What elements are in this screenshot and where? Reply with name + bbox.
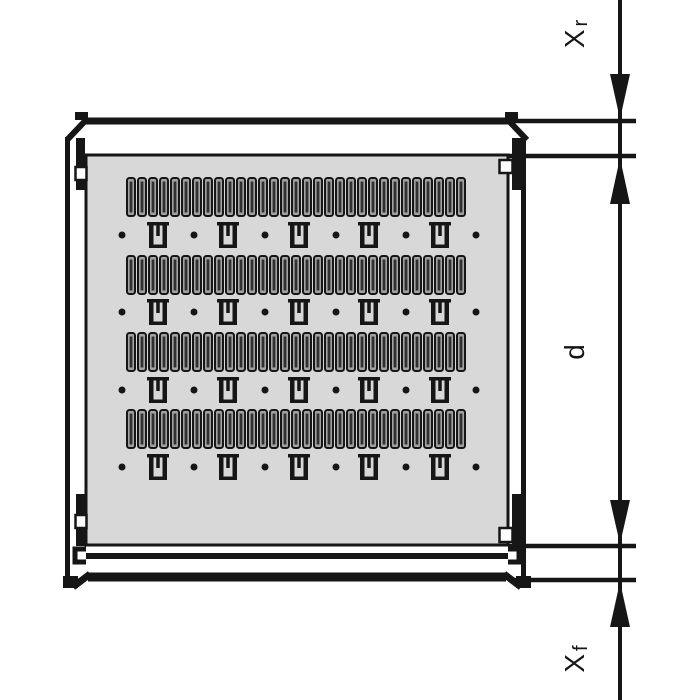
vent-slot <box>424 333 432 371</box>
vent-slot <box>369 410 377 448</box>
vent-slot <box>424 256 432 294</box>
vent-slot <box>226 333 234 371</box>
vent-slot <box>446 410 454 448</box>
bracket-bar-top-left <box>76 138 85 190</box>
vent-slot <box>248 333 256 371</box>
vent-slot <box>435 256 443 294</box>
corner-hole-bottom-left <box>76 515 87 528</box>
vent-slot <box>259 256 267 294</box>
vent-slot <box>237 178 245 216</box>
dimension-label-depth: d <box>559 344 590 360</box>
pilot-hole-dot <box>191 309 198 316</box>
vent-slot <box>325 410 333 448</box>
dimension-label-front-clearance: Xf <box>559 645 592 673</box>
vent-slot <box>204 333 212 371</box>
pilot-hole-dot <box>119 232 126 239</box>
vent-slot <box>435 178 443 216</box>
arrow-down-depth-bottom <box>610 500 630 544</box>
vent-slot <box>127 178 135 216</box>
corner-hole-top-right <box>500 160 513 173</box>
vent-slot <box>248 178 256 216</box>
vent-slot <box>281 333 289 371</box>
vent-slot <box>314 410 322 448</box>
vent-slot <box>193 178 201 216</box>
vent-slot <box>347 333 355 371</box>
vent-slot <box>413 178 421 216</box>
vent-slot <box>281 256 289 294</box>
vent-slot <box>303 410 311 448</box>
vent-slot <box>457 333 465 371</box>
vent-slot <box>127 410 135 448</box>
pilot-hole-dot <box>473 464 480 471</box>
vent-slot <box>314 256 322 294</box>
vent-slot <box>325 178 333 216</box>
drawing-canvas: XrdXf <box>0 0 700 700</box>
vent-slot <box>336 178 344 216</box>
vent-slot <box>149 333 157 371</box>
vent-slot <box>446 333 454 371</box>
bracket-hook-bottom-right <box>508 549 519 562</box>
vent-slot <box>413 410 421 448</box>
pilot-hole-dot <box>473 387 480 394</box>
pilot-hole-dot <box>473 309 480 316</box>
vent-slot <box>303 178 311 216</box>
vent-slot <box>127 333 135 371</box>
vent-slot <box>149 178 157 216</box>
vent-slot <box>435 410 443 448</box>
pilot-hole-dot <box>191 232 198 239</box>
vent-slot <box>292 410 300 448</box>
bottom-profile <box>63 556 531 588</box>
vent-slot <box>171 178 179 216</box>
arrow-down-rear <box>610 74 630 119</box>
corner-hole-top-left <box>76 167 87 180</box>
vent-slot <box>347 178 355 216</box>
vent-slot <box>457 410 465 448</box>
vent-slot <box>424 410 432 448</box>
vent-slot <box>369 333 377 371</box>
vent-slot <box>314 333 322 371</box>
vent-slot <box>281 410 289 448</box>
vent-slot <box>259 178 267 216</box>
vent-slot <box>270 178 278 216</box>
vent-slot <box>138 178 146 216</box>
pilot-hole-dot <box>333 464 340 471</box>
vent-slot <box>204 178 212 216</box>
vent-slot <box>171 333 179 371</box>
vent-slot <box>270 410 278 448</box>
vent-slot <box>182 333 190 371</box>
vent-slot <box>138 410 146 448</box>
vent-slot <box>347 256 355 294</box>
vent-slot <box>182 256 190 294</box>
vent-slot <box>160 333 168 371</box>
vent-slot <box>369 256 377 294</box>
vent-slot <box>171 256 179 294</box>
pilot-hole-dot <box>262 309 269 316</box>
top-profile <box>67 112 527 140</box>
vent-slot <box>259 333 267 371</box>
vent-slot <box>380 333 388 371</box>
vent-slot <box>281 178 289 216</box>
pilot-hole-dot <box>333 387 340 394</box>
pilot-hole-dot <box>403 464 410 471</box>
arrow-up-depth-top <box>610 158 630 204</box>
vent-slot <box>226 178 234 216</box>
vent-slot <box>215 410 223 448</box>
vent-slot <box>160 178 168 216</box>
vent-slot <box>303 256 311 294</box>
vent-slot <box>270 256 278 294</box>
vent-slot <box>204 256 212 294</box>
vent-slot <box>171 410 179 448</box>
vent-slot <box>160 410 168 448</box>
pilot-hole-dot <box>262 232 269 239</box>
vent-slot <box>413 256 421 294</box>
vent-slot <box>215 333 223 371</box>
pilot-hole-dot <box>119 464 126 471</box>
vent-slot <box>215 256 223 294</box>
vent-slot <box>402 333 410 371</box>
bottom-profile-left-foot <box>63 576 78 588</box>
pilot-hole-dot <box>191 464 198 471</box>
vent-slot <box>424 178 432 216</box>
vent-slot <box>457 256 465 294</box>
arrow-up-front <box>610 582 630 627</box>
vent-slot <box>325 333 333 371</box>
vent-slot <box>413 333 421 371</box>
vent-slot <box>380 178 388 216</box>
vent-slot <box>138 333 146 371</box>
vent-slot <box>226 256 234 294</box>
vent-slot <box>380 256 388 294</box>
vent-slot <box>446 256 454 294</box>
pilot-hole-dot <box>191 387 198 394</box>
pilot-hole-dot <box>119 387 126 394</box>
pilot-hole-dot <box>403 309 410 316</box>
vent-slot <box>369 178 377 216</box>
pilot-hole-dot <box>333 232 340 239</box>
vent-slot <box>380 410 388 448</box>
vent-slot <box>237 410 245 448</box>
vent-slot <box>193 333 201 371</box>
vent-slot <box>292 333 300 371</box>
pilot-hole-dot <box>262 464 269 471</box>
vent-slot <box>292 178 300 216</box>
vent-slot <box>446 178 454 216</box>
vent-slot <box>435 333 443 371</box>
vent-slot <box>204 410 212 448</box>
vent-slot <box>391 410 399 448</box>
pilot-hole-dot <box>473 232 480 239</box>
vent-slot <box>325 256 333 294</box>
vent-slot <box>270 333 278 371</box>
vent-slot <box>457 178 465 216</box>
vent-slot <box>358 178 366 216</box>
vent-slot <box>193 410 201 448</box>
vent-slot <box>336 333 344 371</box>
vent-slot <box>259 410 267 448</box>
vent-slot <box>402 410 410 448</box>
dimension-label-rear-clearance: Xr <box>559 19 592 48</box>
vent-slot <box>314 178 322 216</box>
vent-slot <box>402 178 410 216</box>
vent-slot <box>347 410 355 448</box>
vent-slot <box>182 178 190 216</box>
vent-slot <box>248 256 256 294</box>
vent-slot <box>358 410 366 448</box>
vent-slot <box>182 410 190 448</box>
vent-slot <box>391 333 399 371</box>
vent-slot <box>127 256 135 294</box>
vent-slot <box>303 333 311 371</box>
vent-slot <box>336 256 344 294</box>
dimension-labels: XrdXf <box>559 19 592 672</box>
vent-slot <box>138 256 146 294</box>
vent-slot <box>391 256 399 294</box>
vent-slot <box>226 410 234 448</box>
pilot-hole-dot <box>403 232 410 239</box>
vent-slot <box>149 410 157 448</box>
vent-slot <box>149 256 157 294</box>
pilot-hole-dot <box>333 309 340 316</box>
vent-slot <box>237 333 245 371</box>
pilot-hole-dot <box>262 387 269 394</box>
top-profile-left-tab <box>75 112 88 120</box>
vent-slot <box>160 256 168 294</box>
vent-slot <box>358 333 366 371</box>
bracket-hook-bottom-left <box>75 549 86 562</box>
shelf-depth-diagram: XrdXf <box>0 0 700 700</box>
vent-slot <box>193 256 201 294</box>
vent-slot <box>248 410 256 448</box>
vent-slot <box>391 178 399 216</box>
vent-slot <box>292 256 300 294</box>
corner-hole-bottom-right <box>500 528 513 542</box>
pilot-hole-dot <box>403 387 410 394</box>
vent-slot <box>402 256 410 294</box>
vent-slot <box>358 256 366 294</box>
vent-slot <box>215 178 223 216</box>
pilot-hole-dot <box>119 309 126 316</box>
vent-slot <box>336 410 344 448</box>
vent-slot <box>237 256 245 294</box>
